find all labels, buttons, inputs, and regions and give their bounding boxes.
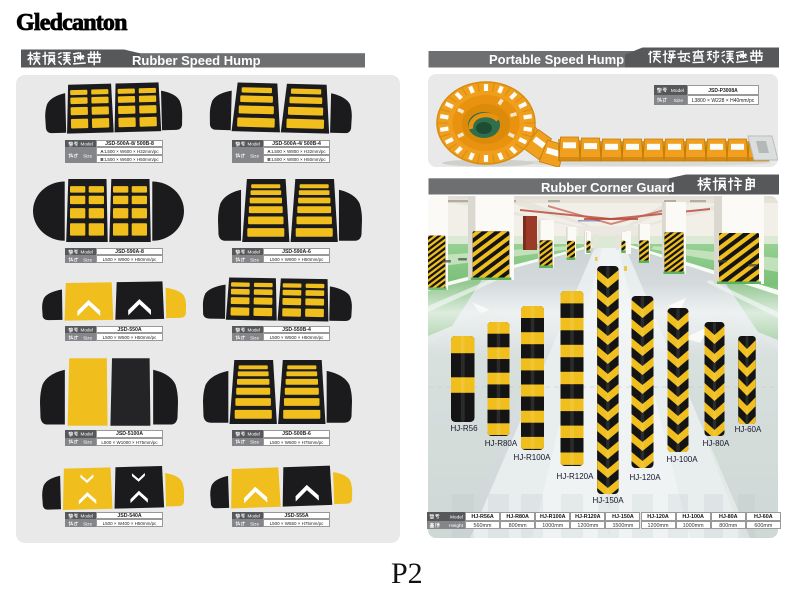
svg-text:Size: Size <box>83 335 92 340</box>
svg-text:HJ-R100A: HJ-R100A <box>514 453 552 462</box>
svg-text:Model: Model <box>671 88 684 94</box>
svg-text:HJ-R56: HJ-R56 <box>450 424 478 433</box>
svg-text:Size: Size <box>83 439 92 444</box>
svg-text:Model: Model <box>81 432 93 437</box>
svg-text:Model: Model <box>81 249 93 254</box>
svg-text:Size: Size <box>250 335 259 340</box>
svg-text:HJ-R120A: HJ-R120A <box>557 472 595 481</box>
svg-text:Height: Height <box>449 523 463 529</box>
svg-text:HJ-100A: HJ-100A <box>666 455 698 464</box>
svg-text:Size: Size <box>250 257 259 262</box>
svg-text:Model: Model <box>81 141 93 146</box>
svg-text:HJ-150A: HJ-150A <box>592 496 624 505</box>
svg-text:Model: Model <box>81 513 93 518</box>
svg-text:Size: Size <box>674 98 684 104</box>
svg-text:Model: Model <box>248 513 260 518</box>
svg-text:HJ-R80A: HJ-R80A <box>485 439 518 448</box>
svg-text:Model: Model <box>248 432 260 437</box>
svg-text:Size: Size <box>250 439 259 444</box>
svg-text:Model: Model <box>248 249 260 254</box>
svg-text:HJ-120A: HJ-120A <box>629 473 661 482</box>
svg-text:Size: Size <box>83 257 92 262</box>
svg-text:Model: Model <box>81 327 93 332</box>
svg-text:Size: Size <box>250 153 259 158</box>
svg-text:HJ-80A: HJ-80A <box>703 439 730 448</box>
svg-text:Model: Model <box>248 327 260 332</box>
svg-text:Model: Model <box>449 514 462 520</box>
svg-text:Size: Size <box>83 521 92 526</box>
svg-text:Model: Model <box>248 141 260 146</box>
svg-text:Size: Size <box>250 521 259 526</box>
svg-text:Size: Size <box>83 153 92 158</box>
svg-text:HJ-60A: HJ-60A <box>735 425 762 434</box>
